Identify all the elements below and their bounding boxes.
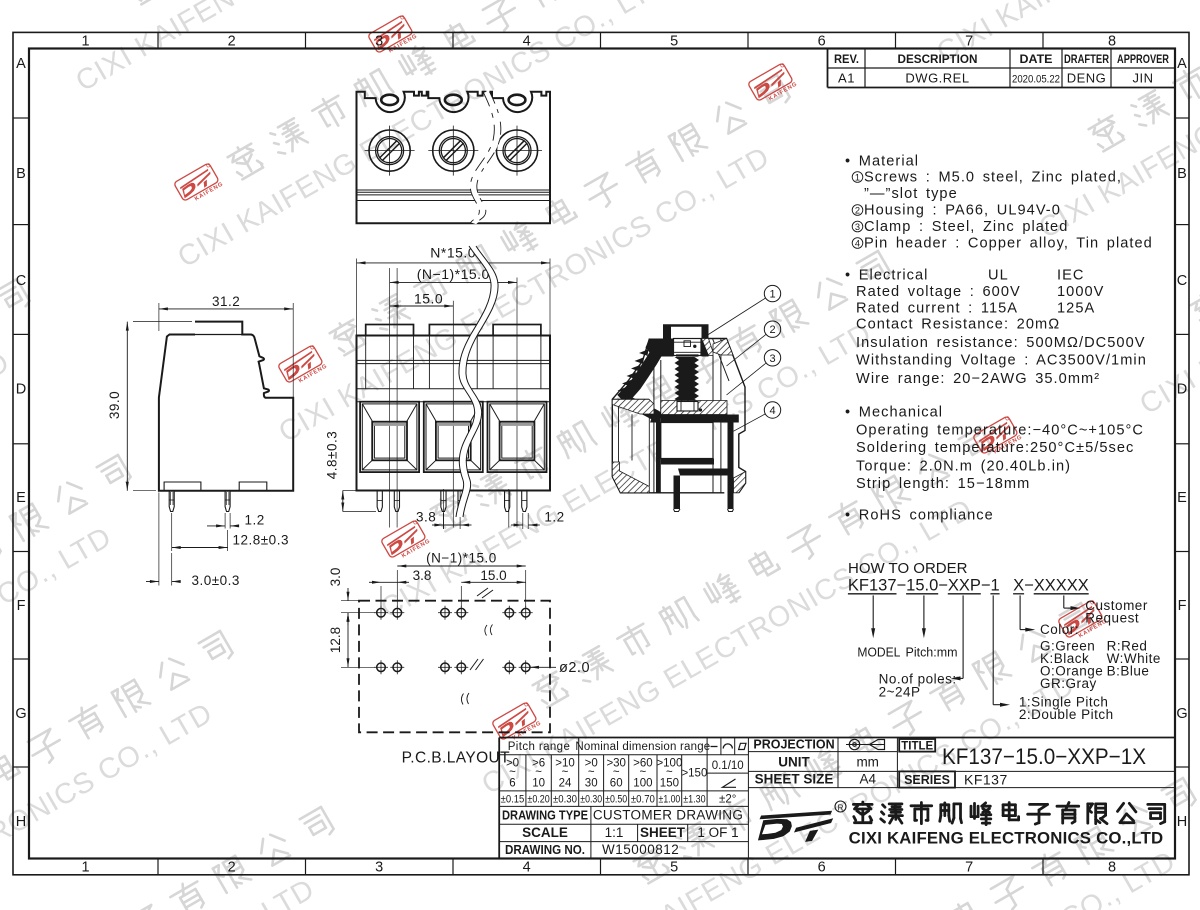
svg-text:8: 8 [1108,860,1116,876]
svg-text:3.8: 3.8 [416,509,436,524]
svg-text:W15000812: W15000812 [602,842,679,857]
svg-text:Rated voltage : 600V: Rated voltage : 600V [856,284,1021,300]
svg-text:1.2: 1.2 [245,513,265,528]
svg-text:”—”slot type: ”—”slot type [864,186,958,202]
svg-text:Torque: 2.0N.m (20.40Lb.in): Torque: 2.0N.m (20.40Lb.in) [856,459,1071,475]
svg-text:DESCRIPTION: DESCRIPTION [898,52,978,66]
svg-text:30: 30 [585,778,598,790]
svg-text:1: 1 [81,34,89,50]
svg-text:15.0: 15.0 [480,568,506,583]
svg-text:7: 7 [965,860,973,876]
svg-text:4: 4 [855,238,860,248]
svg-text:B:Blue: B:Blue [1107,664,1150,679]
svg-text:60: 60 [610,778,623,790]
svg-text:±0.30: ±0.30 [580,794,602,806]
svg-text:E: E [1177,490,1187,506]
svg-text:DRAWING NO.: DRAWING NO. [505,842,585,857]
svg-text:E: E [16,490,26,506]
svg-text:1000V: 1000V [1057,284,1104,300]
svg-text:7: 7 [965,34,973,50]
svg-text:PROJECTION: PROJECTION [753,738,834,752]
svg-text:5: 5 [670,860,678,876]
svg-text:MODEL: MODEL [857,645,900,660]
svg-text:1: 1 [769,289,775,301]
svg-text:3.0±0.3: 3.0±0.3 [192,573,240,588]
svg-text:Screws : M5.0 steel, Zinc plat: Screws : M5.0 steel, Zinc plated, [864,170,1122,186]
svg-text:2: 2 [855,205,860,215]
svg-text:F: F [17,598,26,614]
svg-text:±1.00: ±1.00 [659,794,681,806]
svg-text:(N−1)*15.0: (N−1)*15.0 [426,550,497,565]
svg-text:Operating temperature:−40°C~+1: Operating temperature:−40°C~+105°C [856,423,1144,439]
svg-text:G: G [15,706,26,722]
svg-text:UNIT: UNIT [778,755,810,770]
svg-text:A4: A4 [859,772,876,787]
svg-text:SHEET: SHEET [640,825,686,840]
svg-text:D: D [16,381,26,397]
svg-text:1.2: 1.2 [544,509,564,524]
svg-text:D: D [1177,381,1187,397]
svg-text:6: 6 [509,778,515,790]
svg-text:SCALE: SCALE [522,825,568,840]
svg-text:Nominal dimension range: Nominal dimension range [575,741,710,753]
svg-text:Color:: Color: [1040,622,1079,637]
svg-text:CUSTOMER DRAWING: CUSTOMER DRAWING [593,808,743,823]
svg-text:3: 3 [769,353,775,365]
svg-text:Withstanding Voltage : AC3500V: Withstanding Voltage : AC3500V/1min [856,353,1147,369]
svg-text:DENG: DENG [1067,71,1107,86]
svg-text:DRAFTER: DRAFTER [1064,52,1109,66]
svg-text:X−XXXXX: X−XXXXX [1013,577,1089,595]
svg-text:1:1: 1:1 [605,825,624,840]
svg-text:Housing : PA66, UL94V-0: Housing : PA66, UL94V-0 [864,203,1061,219]
svg-text:1: 1 [855,172,860,182]
svg-text:Rated current : 115A: Rated current : 115A [856,301,1018,317]
svg-text:3: 3 [375,860,383,876]
svg-text:KF137−15.0−XXP−1: KF137−15.0−XXP−1 [848,577,1000,595]
svg-text:±0.70: ±0.70 [631,794,655,806]
svg-text:B: B [16,166,26,182]
svg-text:2: 2 [228,860,236,876]
svg-text:F: F [1178,598,1187,614]
svg-text:2: 2 [228,34,236,50]
svg-text:KF137−15.0−XXP−1X: KF137−15.0−XXP−1X [942,744,1146,769]
svg-text:1 OF 1: 1 OF 1 [697,825,738,840]
svg-text:P.C.B.LAYOUT: P.C.B.LAYOUT [402,750,511,767]
svg-text:A: A [16,56,26,72]
svg-text:2:Double Pitch: 2:Double Pitch [1019,707,1114,722]
svg-text:IEC: IEC [1057,268,1084,284]
svg-text:REV.: REV. [834,52,859,66]
svg-text:APPROVER: APPROVER [1117,52,1169,66]
svg-text:H: H [16,814,26,830]
svg-text:mm: mm [856,755,879,770]
svg-text:C: C [16,273,26,289]
svg-text:H: H [1177,814,1187,830]
svg-text:ø2.0: ø2.0 [559,660,590,676]
svg-text:Pin header : Copper alloy, Tin: Pin header : Copper alloy, Tin plated [864,236,1153,252]
svg-text:±0.50: ±0.50 [605,794,627,806]
svg-text:UL: UL [988,268,1009,284]
svg-text:TITLE: TITLE [901,740,933,752]
svg-text:150: 150 [660,778,679,790]
svg-text:Pitch:mm: Pitch:mm [906,645,958,660]
svg-text:±0.20: ±0.20 [527,794,549,806]
svg-text:0.1/10: 0.1/10 [712,760,744,772]
svg-text:Pitch range: Pitch range [508,741,571,753]
svg-text:39.0: 39.0 [107,391,122,419]
svg-text:SERIES: SERIES [904,773,950,787]
svg-text:15.0: 15.0 [414,290,443,306]
svg-text:±1.30: ±1.30 [683,794,705,806]
svg-text:R: R [838,803,844,812]
svg-text:A: A [1177,56,1187,72]
svg-text:2~24P: 2~24P [879,685,921,700]
svg-text:100: 100 [633,778,652,790]
svg-text:Insulation resistance: 500MΩ/D: Insulation resistance: 500MΩ/DC500V [856,335,1146,351]
svg-text:B: B [1177,166,1187,182]
svg-text:Request: Request [1085,611,1139,626]
svg-text:SHEET SIZE: SHEET SIZE [755,772,834,787]
svg-text:Strip length: 15−18mm: Strip length: 15−18mm [856,476,1030,492]
svg-text:2020.05.22: 2020.05.22 [1012,74,1060,86]
svg-text:HOW TO ORDER: HOW TO ORDER [848,560,968,577]
svg-text:8: 8 [1108,34,1116,50]
svg-text:Contact Resistance: 20mΩ: Contact Resistance: 20mΩ [856,317,1060,333]
svg-text:KF137: KF137 [964,772,1008,788]
svg-text:±0.30: ±0.30 [553,794,577,806]
svg-text:4: 4 [523,34,531,50]
svg-text:Soldering temperature:250°C±5/: Soldering temperature:250°C±5/5sec [856,440,1134,456]
svg-text:10: 10 [532,778,545,790]
svg-text:3: 3 [855,222,860,232]
svg-text:4: 4 [769,405,775,417]
svg-text:• Material: • Material [845,154,919,170]
svg-text:JIN: JIN [1133,71,1154,86]
svg-text:12.8±0.3: 12.8±0.3 [233,533,289,548]
svg-text:C: C [1177,273,1187,289]
svg-text:Wire range: 20−2AWG 35.0mm²: Wire range: 20−2AWG 35.0mm² [856,371,1100,387]
svg-text:5: 5 [670,34,678,50]
svg-text:A1: A1 [838,71,855,86]
svg-text:DRAWING TYPE: DRAWING TYPE [502,808,588,823]
svg-text:• Mechanical: • Mechanical [845,405,943,421]
svg-text:3.0: 3.0 [328,568,343,587]
svg-text:6: 6 [818,34,826,50]
svg-text:• Electrical: • Electrical [845,268,928,284]
svg-text:31.2: 31.2 [212,294,240,309]
svg-text:>150: >150 [681,768,707,780]
svg-text:3: 3 [375,34,383,50]
svg-text:125A: 125A [1057,301,1095,317]
svg-text:3.8: 3.8 [413,568,432,583]
svg-text:12.8: 12.8 [328,627,343,653]
svg-text:4: 4 [523,860,531,876]
svg-text:6: 6 [818,860,826,876]
svg-text:1: 1 [81,860,89,876]
svg-text:GR:Gray: GR:Gray [1040,676,1097,691]
svg-text:2: 2 [769,324,775,336]
svg-text:Clamp : Steel, Zinc plated: Clamp : Steel, Zinc plated [864,219,1068,235]
svg-text:±0.15: ±0.15 [501,794,525,806]
svg-text:24: 24 [559,778,572,790]
svg-text:DWG.REL: DWG.REL [905,71,969,86]
svg-text:4.8±0.3: 4.8±0.3 [325,431,340,479]
svg-text:(N−1)*15.0: (N−1)*15.0 [417,266,490,282]
svg-text:G: G [1176,706,1187,722]
svg-text:±2°: ±2° [719,794,736,806]
svg-text:• RoHS compliance: • RoHS compliance [845,508,994,524]
svg-text:DATE: DATE [1020,52,1053,66]
svg-text:CIXI KAIFENG ELECTRONICS CO.,L: CIXI KAIFENG ELECTRONICS CO.,LTD [849,829,1164,848]
